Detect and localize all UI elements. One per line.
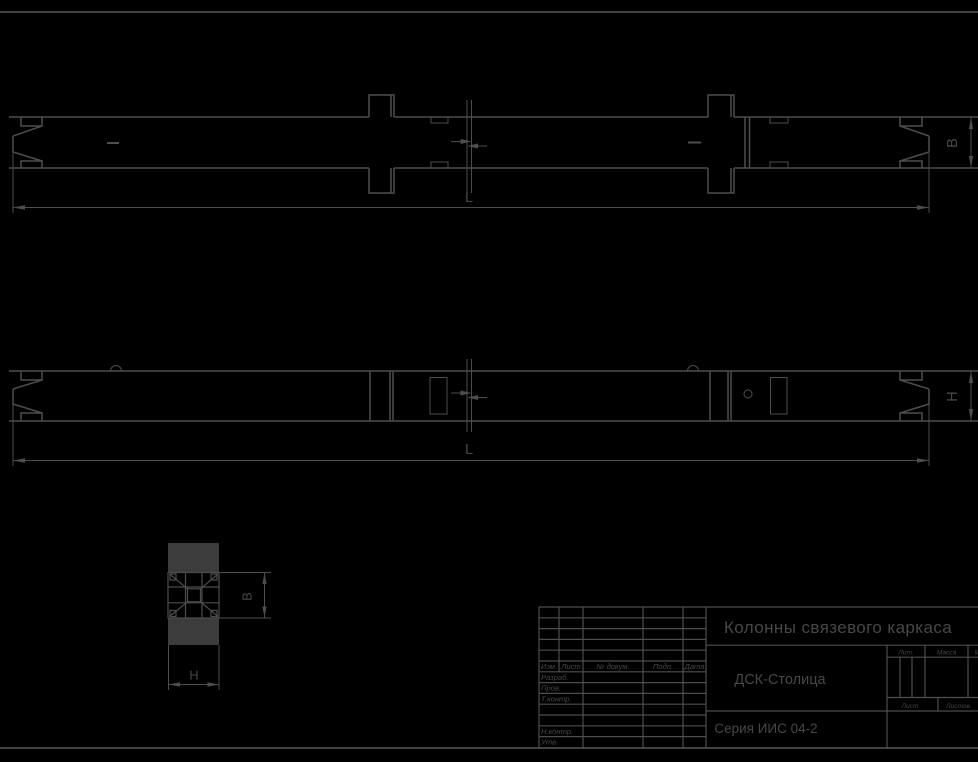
length-dim-label: L	[465, 442, 473, 458]
width-dim-label: B	[240, 592, 255, 601]
joint-lines	[370, 371, 731, 421]
massa-label: Масса	[937, 650, 957, 657]
series-name: Серия ИИС 04-2	[714, 721, 817, 736]
utv-label: Утв.	[540, 738, 558, 747]
column-outline	[9, 371, 978, 421]
joint-lines	[745, 117, 750, 168]
drawing-sheet: { "colors": { "background": "#000000", "…	[0, 0, 978, 762]
dimension-width: B	[945, 117, 973, 168]
t-kontr-label: Т.контр.	[541, 694, 572, 703]
lit-label: Лит.	[897, 650, 914, 657]
right-corbel	[708, 95, 734, 193]
n-kontr-label: Н.контр.	[541, 727, 573, 736]
rebar-pattern	[170, 574, 219, 617]
izm-label: Изм.	[541, 662, 557, 671]
break-mark	[451, 100, 487, 193]
height-dim-label: H	[189, 668, 198, 683]
dimension-height: H	[169, 645, 220, 690]
fixing-hole	[744, 390, 752, 398]
dimension-width: B	[219, 573, 271, 619]
column-outline	[9, 117, 978, 168]
razrab-label: Разраб.	[541, 673, 568, 682]
drawing-canvas: L B	[0, 0, 978, 762]
side-elevation-view: L H	[9, 359, 978, 466]
recess-notches	[431, 117, 788, 168]
width-dim-label: B	[945, 138, 961, 148]
list-label: Лист	[560, 662, 581, 671]
company-name: ДСК-Столица	[734, 672, 826, 688]
sheets-label: Листов	[945, 703, 971, 710]
podp-label: Подп.	[653, 662, 673, 671]
document-title: Колонны связевого каркаса	[724, 618, 952, 637]
signature-labels: Разраб. Пров. Т.контр. Н.контр. Утв.	[540, 673, 573, 747]
top-elevation-view: L B	[9, 95, 978, 213]
left-corbel	[369, 95, 394, 193]
title-block: Колонны связевого каркаса ДСК-Столица Се…	[539, 607, 978, 748]
masshtab-label: Масштаб	[975, 649, 978, 657]
revision-header-labels: Изм. Лист № докум. Подп. Дата	[541, 662, 705, 671]
sheet-label: Лист	[901, 703, 919, 710]
doc-num-label: № докум.	[596, 662, 629, 671]
flange-fills	[168, 543, 219, 645]
height-dim-label: H	[945, 391, 961, 401]
lifting-loops	[111, 366, 699, 372]
strand-marks	[107, 143, 701, 144]
dimension-height: H	[945, 371, 973, 421]
data-label: Дата	[683, 662, 704, 671]
prov-label: Пров.	[541, 684, 561, 693]
length-dim-label: L	[465, 190, 473, 206]
sheet-frame	[0, 12, 978, 748]
embed-plates	[430, 378, 787, 415]
cross-section-view: B H	[168, 543, 271, 690]
